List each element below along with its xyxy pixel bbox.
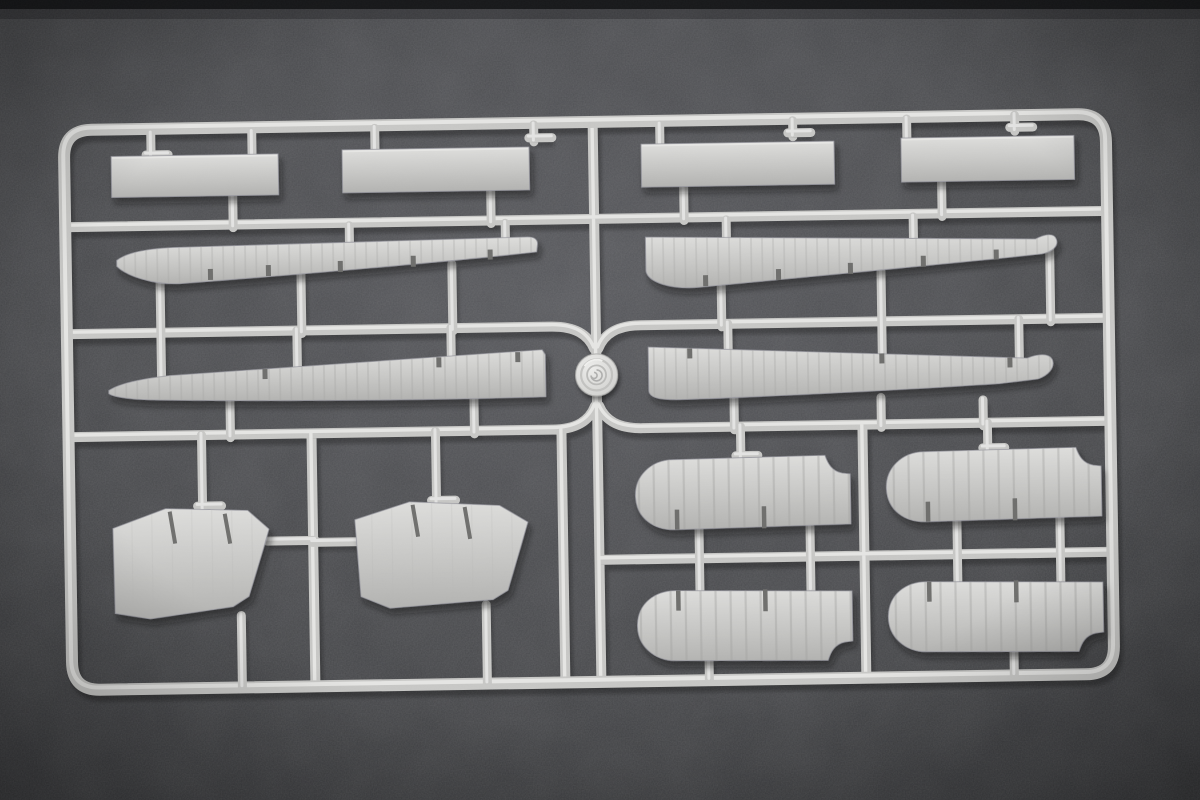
sprue-photo — [0, 0, 1200, 800]
photo-grain — [0, 0, 1200, 800]
sprue-photo-canvas — [0, 0, 1200, 800]
